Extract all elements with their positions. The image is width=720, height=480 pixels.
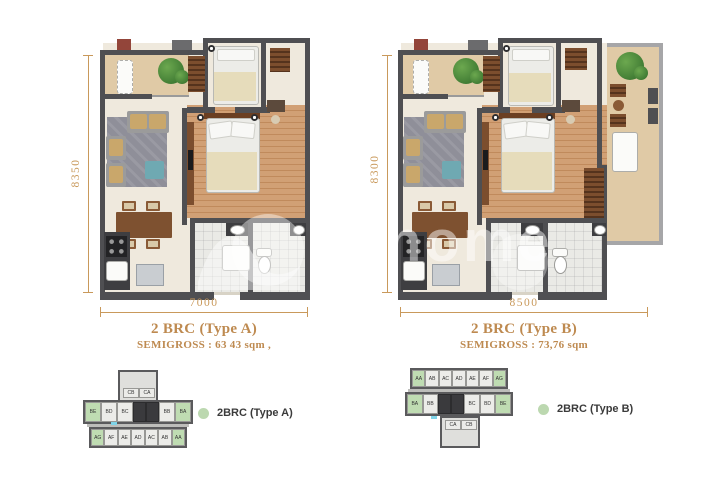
sliding-door-a xyxy=(152,95,189,97)
desk xyxy=(562,100,580,112)
tv xyxy=(188,150,193,170)
plant xyxy=(470,70,484,84)
watermark-text: home xyxy=(386,208,553,275)
desk xyxy=(267,100,285,112)
keyplan-unit: CB xyxy=(123,388,139,398)
dim-label-height-b: 8300 xyxy=(369,139,381,199)
plan-a-subtitle: SEMIGROSS : 63 43 sqm , xyxy=(104,339,304,351)
keyplan-pool-mark xyxy=(431,416,437,419)
keyplan-row-b: BE BD BC BB BA xyxy=(83,400,193,424)
keyplan-pool-mark xyxy=(111,422,117,425)
kitchen-sink xyxy=(106,261,128,281)
keyplan-unit: AE xyxy=(466,370,479,387)
keyplan-tower: CA CB xyxy=(440,416,480,448)
shaft-b xyxy=(468,40,488,50)
toilet-bowl xyxy=(554,256,567,274)
sofa-cushion xyxy=(130,114,147,129)
keyplan-unit: BB xyxy=(423,394,439,414)
dim-tick xyxy=(647,307,648,317)
tv xyxy=(483,150,488,170)
ceiling-unit xyxy=(208,45,215,52)
keyplan-core xyxy=(451,394,464,414)
stool xyxy=(566,115,575,124)
wall xyxy=(100,94,152,99)
dim-tick xyxy=(83,55,93,56)
blanket xyxy=(502,152,552,190)
keyplan-a: CB CA BE BD BC BB BA AG AF AE AD AC AB A… xyxy=(83,370,193,448)
keyplan-unit: BA xyxy=(407,394,423,414)
dim-tick xyxy=(382,55,392,56)
keyplan-row-a: AA AB AC AD AE AF AG xyxy=(410,368,508,389)
dim-tick xyxy=(307,307,308,317)
wall xyxy=(261,43,266,113)
armchair-cushion xyxy=(109,166,123,183)
ceiling-unit xyxy=(503,45,510,52)
keyplan-unit: AA xyxy=(412,370,425,387)
armchair-cushion xyxy=(406,139,420,156)
pillow xyxy=(512,49,550,61)
blanket xyxy=(214,72,256,101)
stool xyxy=(271,115,280,124)
keyplan-b: AA AB AC AD AE AF AG BA BB BC BD BE CA C… xyxy=(405,368,513,450)
blanket xyxy=(207,152,257,190)
keyplan-tower: CB CA xyxy=(118,370,158,402)
keyplan-unit: CA xyxy=(139,388,155,398)
terrace-chair xyxy=(610,84,626,97)
dim-label-width-b: 8500 xyxy=(494,297,554,309)
wall xyxy=(398,94,448,99)
floorplan-sheet: 8350 7000 8300 8500 home 2 BRC (Type A) … xyxy=(0,0,720,480)
dim-tick xyxy=(400,307,401,317)
entry-door-a xyxy=(214,292,240,295)
shaft-a xyxy=(172,40,192,50)
keyplan-unit: AB xyxy=(158,429,171,446)
armchair-cushion xyxy=(406,166,420,183)
dim-line-horizontal-b xyxy=(400,312,648,313)
ceiling-unit xyxy=(251,114,258,121)
dining-chair xyxy=(146,239,160,249)
fridge xyxy=(136,264,164,286)
keyplan-row-b: BA BB BC BD BE xyxy=(405,392,513,416)
sofa-cushion xyxy=(149,114,166,129)
dining-chair xyxy=(122,201,136,211)
stove xyxy=(106,236,127,257)
watermark-logo xyxy=(196,198,316,290)
dim-line-horizontal-a xyxy=(100,312,308,313)
wall xyxy=(240,292,310,300)
sliding-door-b xyxy=(448,95,484,97)
keyplan-unit: CA xyxy=(445,420,461,430)
hall-wardrobe xyxy=(584,168,604,218)
keyplan-unit: BE xyxy=(85,402,101,422)
dining-chair xyxy=(146,201,160,211)
dim-tick xyxy=(83,292,93,293)
ac-ledge-b xyxy=(414,39,428,50)
keyplan-unit: BA xyxy=(175,402,191,422)
keyplan-core xyxy=(133,402,146,422)
dim-label-height-a: 8350 xyxy=(70,143,82,203)
keyplan-row-a: AG AF AE AD AC AB AA xyxy=(89,427,187,448)
ac-unit xyxy=(648,108,658,124)
plant xyxy=(175,70,189,84)
ac-ledge-a xyxy=(117,39,131,50)
terrace-chair xyxy=(610,114,626,127)
wall xyxy=(597,38,602,168)
keyplan-unit: AB xyxy=(425,370,438,387)
closet xyxy=(565,48,587,70)
dim-label-width-a: 7000 xyxy=(174,297,234,309)
wall xyxy=(203,38,310,43)
wardrobe xyxy=(483,56,500,92)
legend-swatch-a xyxy=(198,408,209,419)
ceiling-unit xyxy=(197,114,204,121)
ceiling-unit xyxy=(492,114,499,121)
keyplan-unit: AG xyxy=(91,429,104,446)
legend-swatch-b xyxy=(538,404,549,415)
armchair-cushion xyxy=(109,139,123,156)
sofa-cushion xyxy=(427,114,444,129)
plant xyxy=(634,66,648,80)
keyplan-unit: AF xyxy=(479,370,492,387)
dim-tick xyxy=(100,307,101,317)
keyplan-core xyxy=(438,394,451,414)
keyplan-unit: AC xyxy=(145,429,158,446)
keyplan-unit: CB xyxy=(461,420,477,430)
keyplan-unit: AG xyxy=(493,370,506,387)
coffee-table xyxy=(442,161,461,179)
pillow xyxy=(230,121,256,139)
terrace-table xyxy=(613,100,624,111)
legend-label-b: 2BRC (Type B) xyxy=(557,403,633,415)
terrace-planter xyxy=(612,132,638,172)
keyplan-unit: BD xyxy=(480,394,496,414)
keyplan-unit: AD xyxy=(452,370,465,387)
dim-tick xyxy=(382,292,392,293)
plan-a-title: 2 BRC (Type A) xyxy=(104,321,304,338)
dim-line-vertical-a xyxy=(88,55,89,293)
keyplan-unit: AC xyxy=(439,370,452,387)
blanket xyxy=(509,73,551,102)
wardrobe xyxy=(188,56,205,92)
keyplan-unit: BB xyxy=(159,402,175,422)
plan-b-title: 2 BRC (Type B) xyxy=(424,321,624,338)
keyplan-unit: AE xyxy=(118,429,131,446)
terrace-wall xyxy=(659,43,663,245)
wall xyxy=(100,50,208,55)
closet xyxy=(270,48,290,72)
wall xyxy=(556,43,561,113)
keyplan-unit: AF xyxy=(104,429,117,446)
legend-label-a: 2BRC (Type A) xyxy=(217,407,293,419)
planter-box xyxy=(117,60,133,94)
keyplan-unit: BE xyxy=(495,394,511,414)
basin xyxy=(594,225,606,235)
keyplan-unit: AD xyxy=(131,429,144,446)
plan-b-subtitle: SEMIGROSS : 73,76 sqm xyxy=(424,339,624,351)
keyplan-unit: AA xyxy=(172,429,185,446)
keyplan-unit: BC xyxy=(464,394,480,414)
ac-unit xyxy=(648,88,658,104)
keyplan-core xyxy=(146,402,159,422)
planter-box xyxy=(413,60,429,94)
keyplan-unit: BC xyxy=(117,402,133,422)
coffee-table xyxy=(145,161,164,179)
sofa-cushion xyxy=(446,114,463,129)
wall xyxy=(398,50,503,55)
wall xyxy=(498,38,602,43)
keyplan-unit: BD xyxy=(101,402,117,422)
pillow xyxy=(525,121,551,139)
wall xyxy=(190,222,195,292)
pillow xyxy=(217,49,255,61)
entry-door-b xyxy=(512,292,538,295)
ceiling-unit xyxy=(546,114,553,121)
